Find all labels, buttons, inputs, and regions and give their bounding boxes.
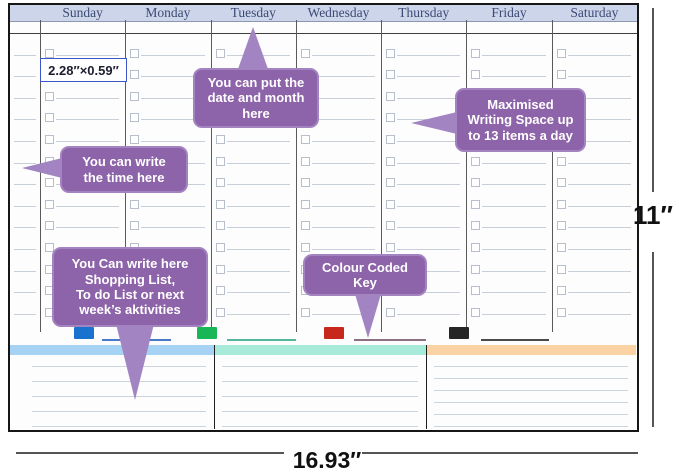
item-line <box>56 227 119 228</box>
item-row <box>467 277 551 299</box>
item-checkbox <box>216 178 225 187</box>
dim-line-right-upper <box>652 8 654 192</box>
item-line <box>56 55 119 56</box>
item-line <box>482 314 545 315</box>
item-row <box>467 39 551 61</box>
item-checkbox <box>557 308 566 317</box>
item-line <box>397 314 460 315</box>
item-row <box>553 61 637 83</box>
callout-arrow-down-icon <box>355 294 381 338</box>
item-checkbox <box>301 178 310 187</box>
weekday-label: Saturday <box>552 5 637 21</box>
item-line <box>56 98 119 99</box>
item-checkbox <box>216 221 225 230</box>
item-line <box>312 76 375 77</box>
item-checkbox <box>386 157 395 166</box>
key-swatch-black <box>449 327 469 339</box>
item-line <box>482 184 545 185</box>
item-line <box>482 227 545 228</box>
time-row <box>10 125 40 147</box>
time-row <box>10 61 40 83</box>
item-line <box>482 249 545 250</box>
notes-panel-strip <box>214 345 426 355</box>
item-line <box>568 249 631 250</box>
time-row <box>10 39 40 61</box>
item-line <box>227 271 290 272</box>
notes-line <box>434 378 628 379</box>
item-row <box>382 61 466 83</box>
item-row <box>212 125 296 147</box>
item-row <box>382 39 466 61</box>
item-checkbox <box>386 92 395 101</box>
item-row <box>297 212 381 234</box>
notes-panel-strip <box>10 345 214 355</box>
item-checkbox <box>557 70 566 79</box>
item-line <box>227 184 290 185</box>
key-line <box>481 339 549 341</box>
item-row <box>212 255 296 277</box>
item-row <box>297 39 381 61</box>
item-checkbox <box>216 157 225 166</box>
time-slot-line <box>14 119 36 120</box>
item-checkbox <box>301 308 310 317</box>
item-row <box>297 147 381 169</box>
day-column <box>466 20 551 332</box>
item-line <box>141 55 204 56</box>
item-line <box>397 76 460 77</box>
item-row <box>126 190 210 212</box>
time-row <box>10 277 40 299</box>
item-row <box>212 190 296 212</box>
callout-shopping: You Can write here Shopping List, To do … <box>52 247 208 327</box>
item-line <box>568 227 631 228</box>
item-row <box>553 233 637 255</box>
item-checkbox <box>386 200 395 209</box>
notes-line <box>222 411 418 412</box>
item-checkbox <box>471 49 480 58</box>
item-checkbox <box>130 92 139 101</box>
time-slot-line <box>14 141 36 142</box>
item-row <box>297 125 381 147</box>
item-row <box>553 298 637 320</box>
item-checkbox <box>386 178 395 187</box>
item-checkbox <box>386 135 395 144</box>
item-line <box>397 227 460 228</box>
item-line <box>312 184 375 185</box>
item-checkbox <box>130 135 139 144</box>
key-line <box>354 339 426 341</box>
key-line <box>227 339 296 341</box>
time-slot-line <box>14 55 36 56</box>
item-checkbox <box>130 70 139 79</box>
callout-arrow-down-icon <box>116 324 154 400</box>
panel-divider <box>426 345 428 429</box>
item-checkbox <box>557 221 566 230</box>
notes-line <box>222 396 418 397</box>
item-line <box>397 163 460 164</box>
item-row <box>212 212 296 234</box>
time-slot-line <box>14 249 36 250</box>
item-line <box>482 163 545 164</box>
item-row <box>382 212 466 234</box>
item-line <box>568 292 631 293</box>
item-checkbox <box>216 243 225 252</box>
weekly-planner-board: SundayMondayTuesdayWednesdayThursdayFrid… <box>8 3 639 432</box>
time-slot-line <box>14 271 36 272</box>
item-line <box>141 141 204 142</box>
item-line <box>312 163 375 164</box>
item-line <box>397 184 460 185</box>
callout-time: You can write the time here <box>60 146 188 193</box>
cell-size-badge: 2.28″×0.59″ <box>40 58 127 82</box>
planner-product-image: SundayMondayTuesdayWednesdayThursdayFrid… <box>0 0 679 476</box>
notes-line <box>434 402 628 403</box>
item-line <box>56 141 119 142</box>
item-checkbox <box>557 286 566 295</box>
item-checkbox <box>557 200 566 209</box>
callout-colour-key: Colour Coded Key <box>303 254 427 296</box>
item-row <box>553 190 637 212</box>
item-line <box>227 314 290 315</box>
weekday-label: Monday <box>125 5 210 21</box>
item-checkbox <box>386 308 395 317</box>
weekday-label: Tuesday <box>211 5 296 21</box>
item-row <box>297 233 381 255</box>
time-slot-line <box>14 227 36 228</box>
notes-line <box>222 381 418 382</box>
time-slot-line <box>14 76 36 77</box>
item-row <box>41 104 125 126</box>
item-row <box>553 212 637 234</box>
item-line <box>397 141 460 142</box>
item-line <box>568 314 631 315</box>
time-row <box>10 190 40 212</box>
item-checkbox <box>301 243 310 252</box>
item-line <box>227 249 290 250</box>
item-line <box>397 55 460 56</box>
notes-line <box>434 366 628 367</box>
item-row <box>41 82 125 104</box>
weekday-label: Sunday <box>40 5 125 21</box>
item-row <box>382 233 466 255</box>
item-row <box>553 169 637 191</box>
item-row <box>467 61 551 83</box>
item-row <box>212 233 296 255</box>
item-checkbox <box>471 286 480 295</box>
item-row <box>467 190 551 212</box>
item-line <box>227 227 290 228</box>
item-row <box>467 169 551 191</box>
item-checkbox <box>471 200 480 209</box>
item-row <box>41 125 125 147</box>
time-row <box>10 82 40 104</box>
item-row <box>297 190 381 212</box>
item-line <box>312 227 375 228</box>
item-checkbox <box>130 113 139 122</box>
item-row <box>41 212 125 234</box>
notes-line <box>32 426 206 427</box>
item-checkbox <box>130 200 139 209</box>
item-line <box>482 206 545 207</box>
item-row <box>41 190 125 212</box>
notes-line <box>434 414 628 415</box>
item-line <box>312 141 375 142</box>
item-checkbox <box>216 308 225 317</box>
item-line <box>482 271 545 272</box>
time-slot-line <box>14 314 36 315</box>
item-line <box>312 55 375 56</box>
dim-line-right-lower <box>652 252 654 427</box>
panel-divider <box>214 345 216 429</box>
item-checkbox <box>557 243 566 252</box>
item-line <box>56 206 119 207</box>
item-line <box>482 292 545 293</box>
item-checkbox <box>386 243 395 252</box>
item-row <box>467 233 551 255</box>
item-row <box>553 277 637 299</box>
item-line <box>482 76 545 77</box>
time-row <box>10 233 40 255</box>
item-row <box>382 147 466 169</box>
width-dimension-label: 16.93″ <box>0 447 654 474</box>
item-row <box>382 190 466 212</box>
item-row <box>467 212 551 234</box>
item-checkbox <box>471 308 480 317</box>
item-checkbox <box>216 200 225 209</box>
weekday-label: Friday <box>466 5 551 21</box>
item-row <box>467 298 551 320</box>
item-checkbox <box>301 49 310 58</box>
item-checkbox <box>216 265 225 274</box>
item-line <box>568 76 631 77</box>
item-checkbox <box>45 92 54 101</box>
item-checkbox <box>45 135 54 144</box>
item-line <box>312 98 375 99</box>
item-row <box>212 147 296 169</box>
item-checkbox <box>386 49 395 58</box>
time-slot-line <box>14 184 36 185</box>
key-swatch-red <box>324 327 344 339</box>
notes-line <box>434 390 628 391</box>
item-checkbox <box>301 135 310 144</box>
callout-arrow-up-icon <box>238 27 268 69</box>
time-row <box>10 104 40 126</box>
item-row <box>212 169 296 191</box>
item-row <box>212 298 296 320</box>
item-row <box>553 255 637 277</box>
item-line <box>312 249 375 250</box>
item-line <box>568 163 631 164</box>
callout-arrow-left-icon <box>22 158 62 178</box>
day-column <box>552 20 637 332</box>
time-row <box>10 255 40 277</box>
item-checkbox <box>45 221 54 230</box>
item-line <box>397 98 460 99</box>
item-line <box>397 206 460 207</box>
item-line <box>227 141 290 142</box>
item-line <box>482 55 545 56</box>
item-row <box>297 169 381 191</box>
item-row <box>467 255 551 277</box>
item-row <box>212 277 296 299</box>
callout-date-month: You can put the date and month here <box>193 68 319 128</box>
notes-line <box>32 411 206 412</box>
item-line <box>56 119 119 120</box>
item-checkbox <box>471 157 480 166</box>
item-checkbox <box>130 221 139 230</box>
item-row <box>553 39 637 61</box>
item-checkbox <box>301 157 310 166</box>
item-line <box>227 206 290 207</box>
item-line <box>227 292 290 293</box>
item-row <box>382 298 466 320</box>
key-swatch-blue <box>74 327 94 339</box>
item-line <box>141 227 204 228</box>
item-line <box>568 271 631 272</box>
item-checkbox <box>386 113 395 122</box>
weekday-label: Wednesday <box>296 5 381 21</box>
time-row <box>10 212 40 234</box>
key-swatch-green <box>197 327 217 339</box>
item-row <box>382 82 466 104</box>
notes-line <box>222 426 418 427</box>
item-row <box>126 125 210 147</box>
item-checkbox <box>45 113 54 122</box>
item-line <box>568 55 631 56</box>
item-checkbox <box>301 200 310 209</box>
item-checkbox <box>557 157 566 166</box>
item-checkbox <box>45 49 54 58</box>
item-checkbox <box>386 70 395 79</box>
item-checkbox <box>216 286 225 295</box>
notes-panel-strip <box>426 345 636 355</box>
callout-max-space: Maximised Writing Space up to 13 items a… <box>455 88 586 152</box>
item-checkbox <box>301 221 310 230</box>
weekday-label: Thursday <box>381 5 466 21</box>
time-row <box>10 298 40 320</box>
notes-line <box>434 426 628 427</box>
item-line <box>227 163 290 164</box>
time-slot-line <box>14 292 36 293</box>
item-checkbox <box>557 265 566 274</box>
item-checkbox <box>471 243 480 252</box>
height-dimension-label: 11″ <box>633 200 673 231</box>
item-line <box>568 206 631 207</box>
item-checkbox <box>471 70 480 79</box>
notes-line <box>222 366 418 367</box>
item-row <box>126 212 210 234</box>
time-slot-line <box>14 206 36 207</box>
item-checkbox <box>471 178 480 187</box>
item-line <box>568 184 631 185</box>
item-line <box>312 206 375 207</box>
time-slot-line <box>14 98 36 99</box>
item-checkbox <box>216 49 225 58</box>
item-checkbox <box>45 200 54 209</box>
item-checkbox <box>557 178 566 187</box>
item-checkbox <box>471 265 480 274</box>
item-line <box>397 249 460 250</box>
item-checkbox <box>557 49 566 58</box>
item-row <box>382 169 466 191</box>
item-line <box>312 119 375 120</box>
callout-arrow-left-icon <box>411 112 457 134</box>
item-checkbox <box>130 49 139 58</box>
item-line <box>141 206 204 207</box>
item-row <box>126 39 210 61</box>
item-checkbox <box>45 178 54 187</box>
item-checkbox <box>471 221 480 230</box>
item-checkbox <box>216 135 225 144</box>
item-checkbox <box>386 221 395 230</box>
